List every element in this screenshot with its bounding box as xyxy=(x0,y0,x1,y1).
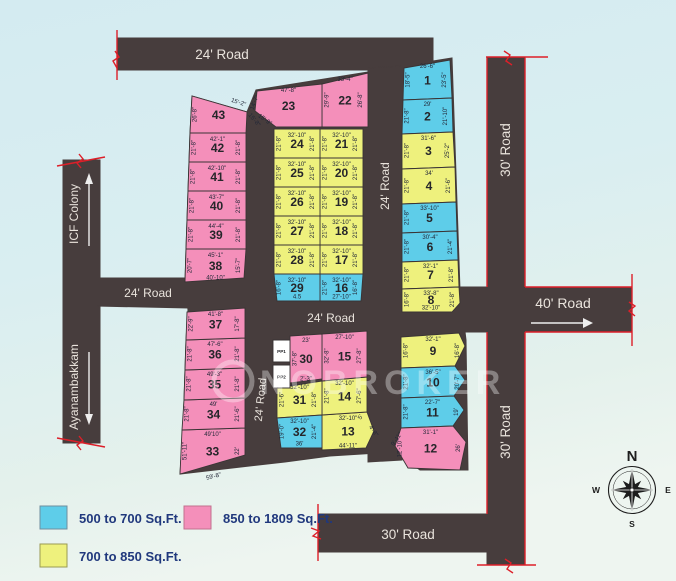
legend-label-blue: 500 to 700 Sq.Ft. xyxy=(79,511,182,526)
plot-15-dim-left: 32'-8" xyxy=(325,348,331,363)
plot-20-dim-top: 32'-10" xyxy=(332,162,351,168)
plot-2-dim-top: 29' xyxy=(424,102,432,108)
plot-27-dim-right: 21'-8" xyxy=(310,223,316,238)
road-label-24-road-top: 24' Road xyxy=(195,47,249,62)
plot-7-dim-right: 21'-8" xyxy=(449,267,455,282)
road-label-30-road-upper: 30' Road xyxy=(498,123,513,177)
plot-41-dim-right: 21'-8" xyxy=(236,169,242,184)
plot-16-dim-right: 16'-8" xyxy=(353,280,359,295)
plot-13-dim-top: 32'-10" xyxy=(339,416,358,422)
plot-1-dim-left: 18'-5" xyxy=(406,72,412,87)
plot-1-dim-top: 26'-6" xyxy=(420,64,435,70)
plot-number-3: 3 xyxy=(425,144,432,158)
ayanambakkam-label: Ayanambakkam xyxy=(67,344,81,430)
plot-23-dim-top: 47'-8" xyxy=(281,88,296,94)
plot-15-dim-top: 27'-10" xyxy=(335,335,354,341)
plot-3-dim-top: 31'-6" xyxy=(421,136,436,142)
plot-16-dim-left: 21'-8" xyxy=(323,280,329,295)
plot-number-28: 28 xyxy=(290,253,304,267)
plot-24-dim-left: 21'-8" xyxy=(277,136,283,151)
plot-11-dim-left: 21'-8" xyxy=(404,404,410,419)
plot-number-38: 38 xyxy=(209,259,223,273)
compass-east-label: E xyxy=(665,485,671,495)
plot-number-1: 1 xyxy=(424,74,431,88)
road-surface-0 xyxy=(117,38,433,70)
plot-36-dim-top: 47'-6" xyxy=(207,342,222,348)
plot-27-dim-left: 21'-8" xyxy=(277,223,283,238)
plot-28-dim-left: 21'-8" xyxy=(277,252,283,267)
plot-number-33: 33 xyxy=(206,445,220,459)
plot-28-dim-top: 32'-10" xyxy=(288,249,307,255)
plot-33-dim-top: 49'10" xyxy=(204,432,221,438)
plot-29-dim-bottom: 4.5 xyxy=(293,295,302,301)
plot-39-dim-right: 21'-8" xyxy=(236,227,242,242)
plot-number-23: 23 xyxy=(282,99,296,113)
plot-number-17: 17 xyxy=(335,253,349,267)
plot-17-dim-top: 32'-10" xyxy=(332,249,351,255)
plot-32-dim-bottom: 36' xyxy=(296,442,304,448)
plot-21-dim-right: 21'-8" xyxy=(353,136,359,151)
plot-8-dim-right: 21'-8" xyxy=(450,292,456,307)
plot-number-21: 21 xyxy=(335,137,349,151)
plot-38-dim-right: 15'-7" xyxy=(236,258,242,273)
plot-15-dim-right: 27'-8" xyxy=(357,348,363,363)
plot-number-36: 36 xyxy=(208,348,222,362)
plot-21-dim-top: 32'-10" xyxy=(332,133,351,139)
plot-18-dim-top: 32'-10" xyxy=(332,220,351,226)
compass-north-label: N xyxy=(627,448,638,465)
plot-37-dim-left: 22'-9" xyxy=(189,316,195,331)
plot-20-dim-right: 21'-8" xyxy=(353,165,359,180)
plot-number-2: 2 xyxy=(424,110,431,124)
plot-4-dim-right: 21'-6" xyxy=(446,178,452,193)
plot-8-dim-top: 33'-8" xyxy=(423,291,438,297)
plot-42-dim-top: 42'-1" xyxy=(210,137,225,143)
plot-8-dim-left: 16'-8" xyxy=(405,292,411,307)
plot-36-dim-right: 21'-8" xyxy=(235,346,241,361)
plot-32-dim-right: 21'-4" xyxy=(312,424,318,439)
plot-19-dim-right: 21'-8" xyxy=(353,194,359,209)
plot-26-dim-left: 21'-8" xyxy=(277,194,283,209)
legend-swatch-pink xyxy=(184,506,211,529)
plot-number-18: 18 xyxy=(335,224,349,238)
compass-south-label: S xyxy=(629,519,635,529)
road-surface-1 xyxy=(368,66,402,462)
map-svg: 126'-6"18'-5"23'-5"229'21'-8"21'-10"331'… xyxy=(0,0,676,581)
plot-number-9: 9 xyxy=(430,344,437,358)
plot-3-dim-left: 21'-8" xyxy=(405,143,411,158)
plot-11-dim-right: 19' xyxy=(454,408,460,416)
plot-22-dim-right: 26'-8" xyxy=(358,92,364,107)
road-label-30-road-lower: 30' Road xyxy=(498,405,513,459)
plot-28-dim-right: 21'-8" xyxy=(310,252,316,267)
plot-40-dim-left: 21'-8" xyxy=(190,198,196,213)
plot-39-dim-left: 21'-8" xyxy=(189,227,195,242)
plot-19-dim-left: 21'-8" xyxy=(323,194,329,209)
plot-6-dim-right: 21'-4" xyxy=(448,239,454,254)
plot-29-dim-left: 16'-8" xyxy=(277,280,283,295)
plot-8-dim-bottom: 32'-10" xyxy=(422,306,441,312)
plot-number-6: 6 xyxy=(427,240,434,254)
plot-number-4: 4 xyxy=(426,179,433,193)
plot-number-42: 42 xyxy=(211,141,225,155)
plot-41-dim-left: 21'-8" xyxy=(191,169,197,184)
plot-number-15: 15 xyxy=(338,350,352,364)
plot-17-dim-right: 21'-8" xyxy=(353,252,359,267)
plot-5-dim-left: 21'-8" xyxy=(405,210,411,225)
plot-number-39: 39 xyxy=(209,228,223,242)
road-label-24-road-branch: 24' Road xyxy=(124,286,172,300)
road-label-24-road-vertical: 24' Road xyxy=(378,162,392,210)
plot-39-dim-top: 44'-4" xyxy=(208,224,223,230)
plot-7-dim-top: 32'-1" xyxy=(423,264,438,270)
plot-26-dim-top: 32'-10" xyxy=(288,191,307,197)
plot-34-dim-top: 49' xyxy=(210,402,218,408)
plot-32-dim-left: 19'-0" xyxy=(280,424,286,439)
plot-40-dim-right: 21'-8" xyxy=(236,198,242,213)
plot-number-26: 26 xyxy=(290,195,304,209)
legend-swatch-blue xyxy=(40,506,67,529)
plot-16-dim-top: 32'-10" xyxy=(332,278,351,284)
plot-19-dim-top: 32'-10" xyxy=(332,191,351,197)
compass-hub xyxy=(630,488,634,492)
plot-25-dim-left: 21'-8" xyxy=(277,165,283,180)
plot-number-19: 19 xyxy=(335,195,349,209)
plot-25-dim-top: 32'-10" xyxy=(288,162,307,168)
plot-34-dim-right: 21'-6" xyxy=(235,406,241,421)
plot-30-dim-top: 23' xyxy=(302,338,310,344)
plot-number-11: 11 xyxy=(426,406,439,420)
icf-colony-label: ICF Colony xyxy=(67,184,81,244)
plot-18-dim-right: 21'-8" xyxy=(353,223,359,238)
plot-3-dim-right: 25'-2" xyxy=(445,143,451,158)
road-label-40-road: 40' Road xyxy=(535,295,591,311)
plot-5-dim-top: 33'-10" xyxy=(420,206,439,212)
plot-12-dim-right: 26' xyxy=(456,444,462,452)
plot-number-20: 20 xyxy=(335,166,349,180)
plot-33-dim-right: 22' xyxy=(235,447,241,455)
plot-number-22: 22 xyxy=(338,94,352,108)
road-label-30-road-bottom: 30' Road xyxy=(381,527,435,542)
plot-layout-map: 126'-6"18'-5"23'-5"229'21'-8"21'-10"331'… xyxy=(0,0,676,581)
plot-42-dim-left: 21'-8" xyxy=(192,140,198,155)
plot-38-dim-top: 45'-1" xyxy=(208,253,223,259)
plot-number-7: 7 xyxy=(427,268,434,282)
plot-43-dim-left: 26'-8" xyxy=(193,107,199,122)
plot-9-dim-left: 16'-8" xyxy=(404,343,410,358)
plot-33-dim-left: 51'-11" xyxy=(183,442,189,460)
plot-number-24: 24 xyxy=(290,137,304,151)
plot-9-dim-right: 16'-8" xyxy=(455,343,461,358)
plot-25-dim-right: 21'-8" xyxy=(310,165,316,180)
plot-number-41: 41 xyxy=(210,170,224,184)
plot-16-dim-bottom: 27'-10" xyxy=(332,295,351,301)
plot-6-dim-top: 30'-4" xyxy=(422,235,437,241)
plot-4-dim-left: 21'-8" xyxy=(405,178,411,193)
plot-27-dim-top: 32'-10" xyxy=(288,220,307,226)
plot-number-12: 12 xyxy=(424,442,438,456)
plot-20-dim-left: 21'-8" xyxy=(323,165,329,180)
plots-layer: 126'-6"18'-5"23'-5"229'21'-8"21'-10"331'… xyxy=(180,60,466,482)
plot-number-27: 27 xyxy=(290,224,304,238)
plot-7-dim-left: 21'-8" xyxy=(405,267,411,282)
plot-17-dim-left: 21'-8" xyxy=(323,252,329,267)
plot-18-dim-left: 21'-8" xyxy=(323,223,329,238)
plot-4-dim-top: 34' xyxy=(425,171,433,177)
plot-number-PP1: PP1 xyxy=(277,349,286,354)
plot-number-40: 40 xyxy=(210,199,224,213)
plot-29-dim-top: 32'-10" xyxy=(288,278,307,284)
plot-number-5: 5 xyxy=(426,211,433,225)
plot-38-dim-bottom: 40'-10" xyxy=(206,276,225,282)
plot-37-dim-right: 17'-8" xyxy=(235,316,241,331)
plot-number-37: 37 xyxy=(209,318,223,332)
plot-22-dim-left: 29'-9" xyxy=(325,92,331,107)
plot-24-dim-top: 32'-10" xyxy=(288,133,307,139)
plot-2-dim-left: 21'-8" xyxy=(405,108,411,123)
legend-label-yellow: 700 to 850 Sq.Ft. xyxy=(79,549,182,564)
plot-38-dim-left: 20'-7" xyxy=(188,258,194,273)
plot-9-dim-top: 32'-1" xyxy=(425,337,440,343)
plot-24-dim-right: 21'-8" xyxy=(310,136,316,151)
plot-6-dim-left: 21'-8" xyxy=(405,239,411,254)
legend-label-pink: 850 to 1809 Sq.Ft. xyxy=(223,511,333,526)
plot-number-43: 43 xyxy=(212,108,226,122)
plot-number-32: 32 xyxy=(293,425,307,439)
plot-12-dim-top: 31'-1" xyxy=(423,430,438,436)
watermark-text: NOBROKER xyxy=(260,364,506,402)
plot-22-dim-top: 33'-4" xyxy=(337,77,352,83)
plot-37-dim-top: 41'-8" xyxy=(208,312,223,318)
plot-34-dim-left: 21'-8" xyxy=(185,406,191,421)
plot-number-34: 34 xyxy=(207,408,221,422)
plot-21-dim-left: 21'-8" xyxy=(323,136,329,151)
plot-1-dim-right: 23'-5" xyxy=(442,72,448,87)
plot-35-dim-left: 21'-8" xyxy=(187,376,193,391)
compass-west-label: W xyxy=(592,485,601,495)
plot-13-dim-bottom: 44'-11" xyxy=(339,444,357,450)
plot-41-dim-top: 42'-10" xyxy=(208,166,227,172)
plot-26-dim-right: 21'-8" xyxy=(310,194,316,209)
plot-32-dim-top: 32'-10" xyxy=(290,419,309,425)
plot-number-25: 25 xyxy=(290,166,304,180)
plot-40-dim-top: 43'-7" xyxy=(209,195,224,201)
legend-swatch-yellow xyxy=(40,544,67,567)
plot-36-dim-left: 21'-8" xyxy=(188,346,194,361)
plot-2-dim-right: 21'-10" xyxy=(443,107,449,126)
plot-number-13: 13 xyxy=(341,425,355,439)
road-label-24-road-mid: 24' Road xyxy=(307,311,355,325)
plot-42-dim-right: 21'-8" xyxy=(236,140,242,155)
plot-35-dim-right: 21'-8" xyxy=(235,376,241,391)
